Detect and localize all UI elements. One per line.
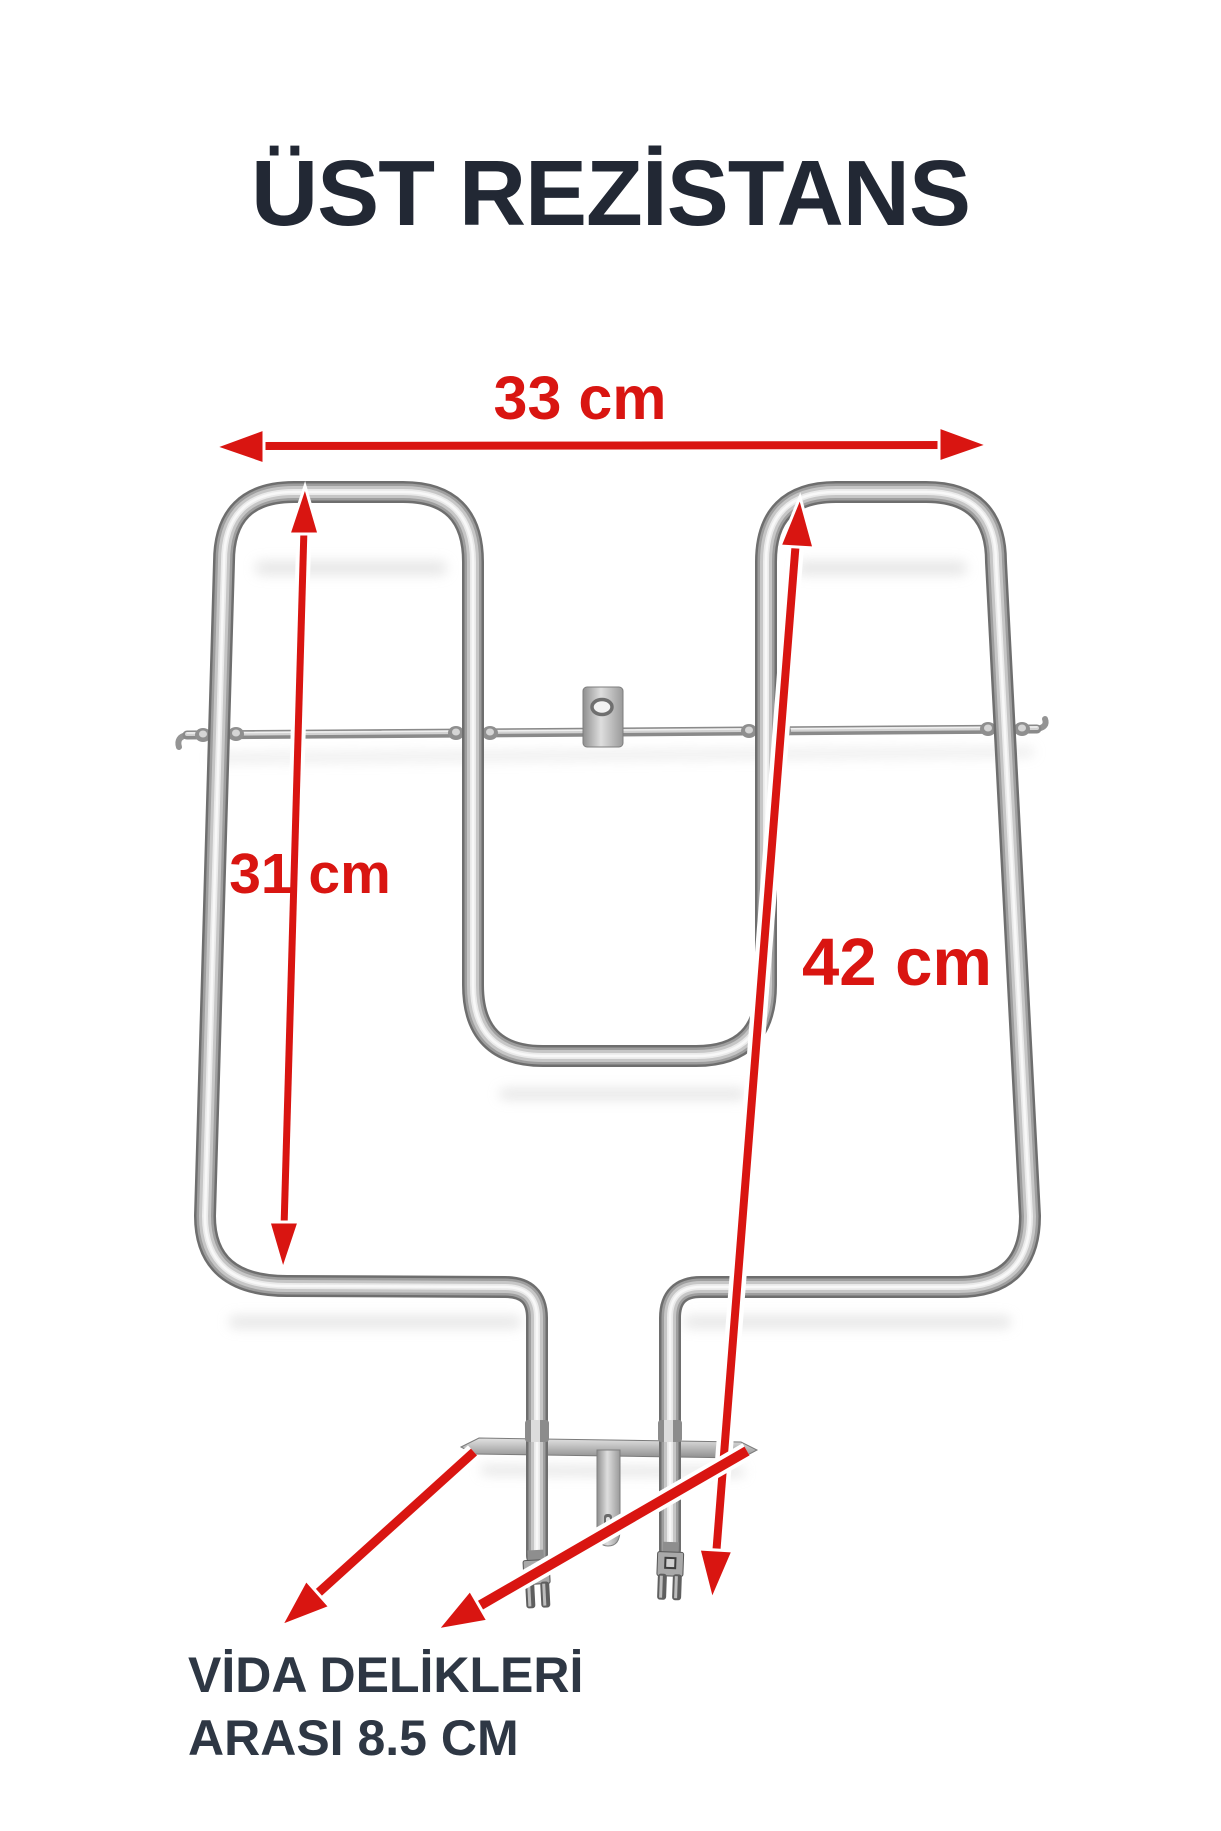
screw-hole-note: VİDA DELİKLERİ ARASI 8.5 CM: [188, 1644, 583, 1769]
heating-element-photo: [0, 0, 1221, 1831]
screw-hole-arrow-right: [437, 1451, 747, 1630]
screw-hole-note-line1: VİDA DELİKLERİ: [188, 1644, 583, 1707]
heating-element-tube: [205, 492, 1030, 1556]
product-diagram-page: ÜST REZİSTANS: [0, 0, 1221, 1831]
screw-hole-arrow-left: [281, 1452, 474, 1626]
inner-height-dimension-label: 31 cm: [225, 841, 395, 907]
terminal-sleeves: [525, 1420, 682, 1442]
upper-hanger-tab: [583, 687, 623, 747]
screw-hole-note-line2: ARASI 8.5 CM: [188, 1707, 583, 1770]
total-height-dimension-label: 42 cm: [783, 924, 1011, 1001]
width-dimension-label: 33 cm: [440, 363, 720, 433]
